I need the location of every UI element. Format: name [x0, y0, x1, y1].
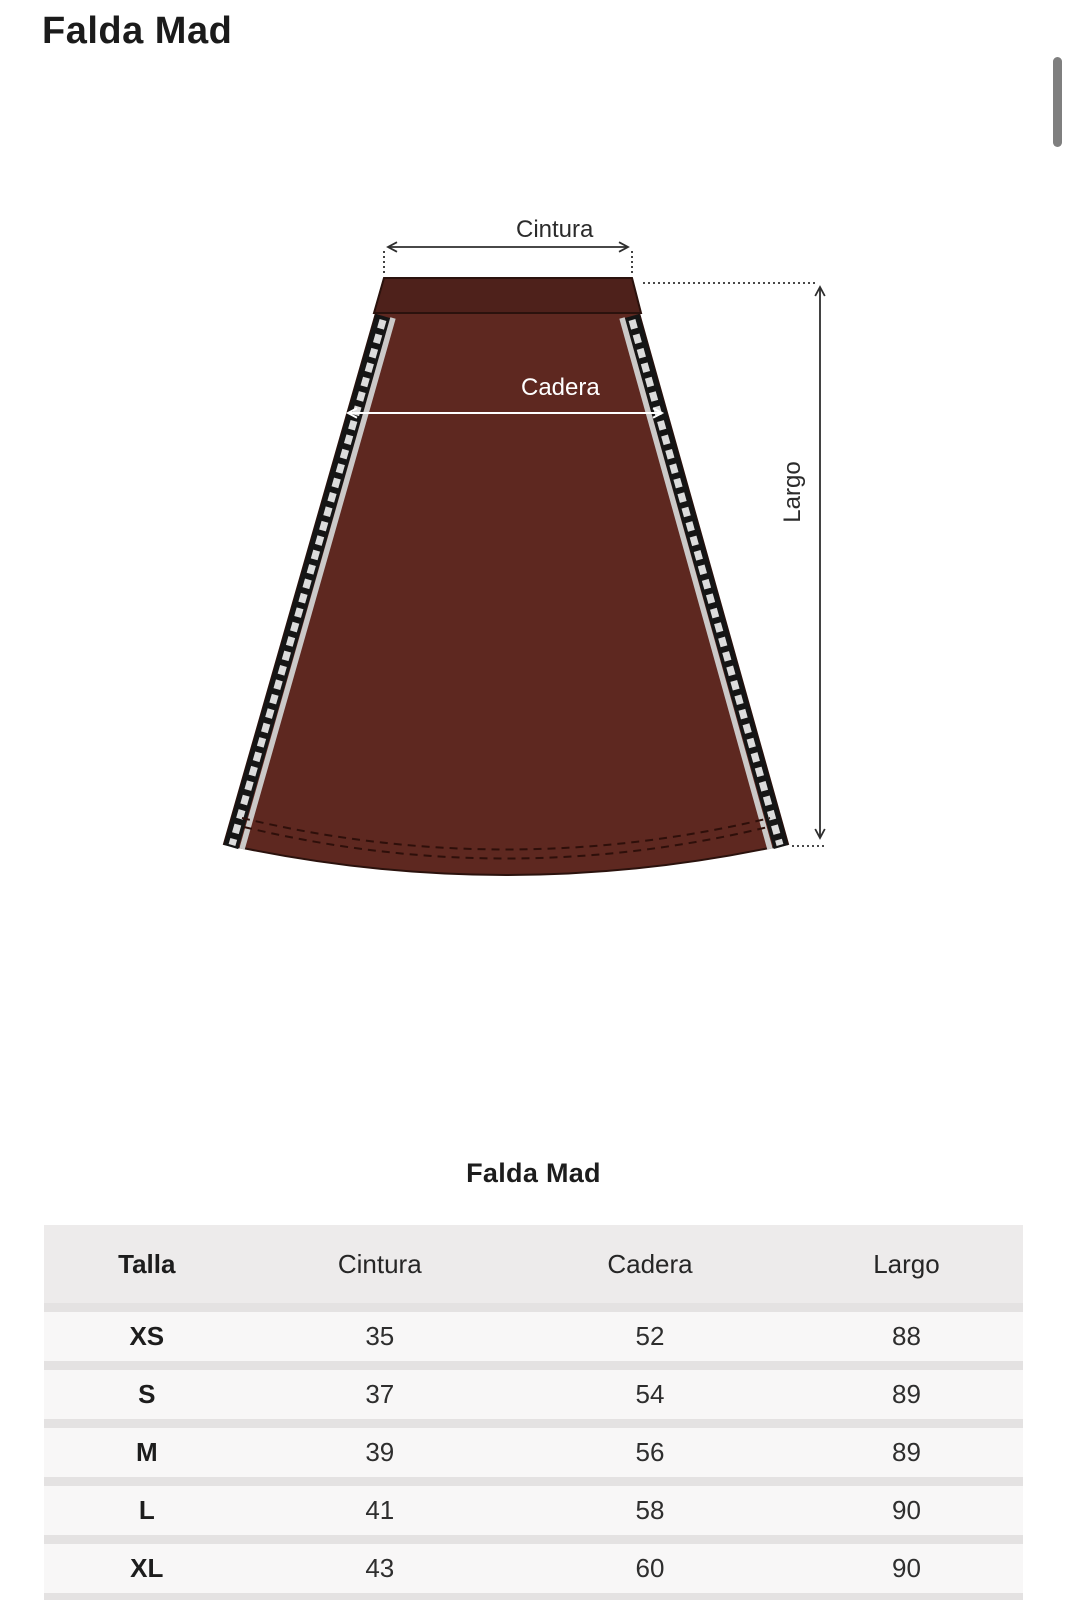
length-cell: 90	[790, 1553, 1023, 1584]
column-header-talla: Talla	[44, 1249, 250, 1280]
size-table-title: Falda Mad	[44, 1158, 1023, 1189]
waist-cell: 39	[250, 1437, 510, 1468]
hip-cell: 60	[510, 1553, 790, 1584]
size-table: Talla Cintura Cadera Largo XS 35 52 88 S…	[44, 1225, 1023, 1600]
length-label: Largo	[779, 456, 807, 528]
size-cell: XL	[44, 1553, 250, 1584]
length-cell: 89	[790, 1437, 1023, 1468]
size-cell: L	[44, 1495, 250, 1526]
size-cell: M	[44, 1437, 250, 1468]
table-row: XS 35 52 88	[44, 1312, 1023, 1361]
hip-cell: 54	[510, 1379, 790, 1410]
table-row: L 41 58 90	[44, 1486, 1023, 1535]
skirt-diagram	[0, 0, 1067, 980]
length-cell: 89	[790, 1379, 1023, 1410]
size-table-header: Talla Cintura Cadera Largo	[44, 1225, 1023, 1303]
length-cell: 88	[790, 1321, 1023, 1352]
waist-cell: 35	[250, 1321, 510, 1352]
waistband	[374, 278, 641, 313]
page: Falda Mad	[0, 0, 1067, 1600]
waist-cell: 37	[250, 1379, 510, 1410]
column-header-cintura: Cintura	[250, 1249, 510, 1280]
hip-cell: 56	[510, 1437, 790, 1468]
waist-label: Cintura	[516, 216, 593, 244]
column-header-largo: Largo	[790, 1249, 1023, 1280]
waist-cell: 41	[250, 1495, 510, 1526]
waist-cell: 43	[250, 1553, 510, 1584]
column-header-cadera: Cadera	[510, 1249, 790, 1280]
size-cell: S	[44, 1379, 250, 1410]
hip-cell: 58	[510, 1495, 790, 1526]
hip-label: Cadera	[521, 374, 600, 402]
hip-cell: 52	[510, 1321, 790, 1352]
table-row: M 39 56 89	[44, 1428, 1023, 1477]
table-row: S 37 54 89	[44, 1370, 1023, 1419]
length-cell: 90	[790, 1495, 1023, 1526]
table-row: XL 43 60 90	[44, 1544, 1023, 1593]
size-cell: XS	[44, 1321, 250, 1352]
